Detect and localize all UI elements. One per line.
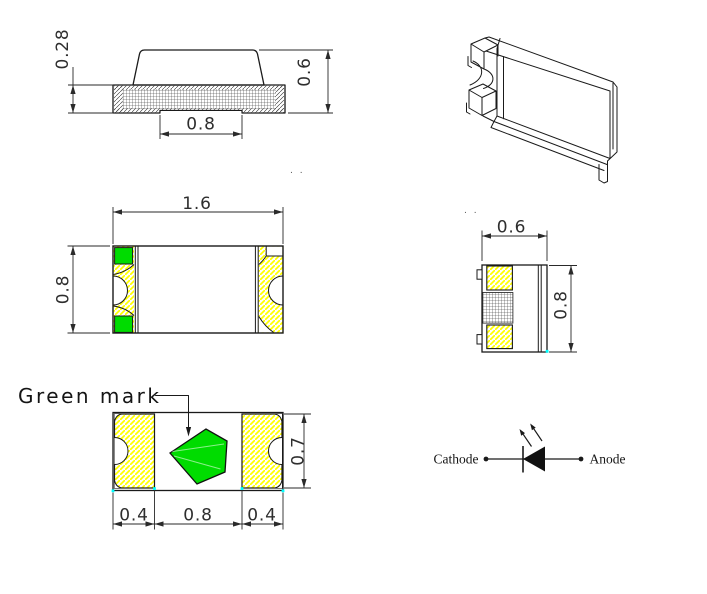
dim-label-0-8-end: 0.8 bbox=[552, 290, 572, 319]
dimension-end-width: 0.6 bbox=[482, 218, 547, 262]
dimension-base-height: 0.28 bbox=[53, 28, 115, 113]
dim-label-0-4-right: 0.4 bbox=[247, 506, 276, 526]
cathode-label: Cathode bbox=[434, 452, 479, 467]
dimension-end-height: 0.8 bbox=[549, 266, 577, 353]
dim-label-0-8-notch: 0.8 bbox=[186, 115, 215, 135]
bottom-view: Green mark 0.4 0.8 0.4 0.7 bbox=[18, 384, 311, 530]
end-leadframe-grid bbox=[483, 293, 513, 324]
dim-label-0-6-end: 0.6 bbox=[497, 218, 526, 238]
end-plating-top bbox=[487, 266, 513, 290]
side-view: 0.28 0.6 0.8 . . bbox=[53, 28, 333, 176]
end-plating-bottom bbox=[487, 325, 513, 349]
dim-label-1-6: 1.6 bbox=[182, 194, 211, 214]
dimension-pad-chain: 0.4 0.8 0.4 bbox=[113, 490, 283, 530]
dim-label-0-28: 0.28 bbox=[53, 28, 73, 69]
end-terminal-tab-bottom bbox=[477, 335, 482, 344]
dimension-width: 0.8 bbox=[54, 246, 111, 333]
green-mark-square-bottom bbox=[115, 316, 133, 332]
cathode-terminal-dot bbox=[484, 457, 489, 462]
bottom-left-pad bbox=[115, 414, 155, 488]
stray-marks-2: . . bbox=[464, 206, 479, 216]
dimension-length: 1.6 bbox=[113, 194, 283, 244]
bottom-right-pad bbox=[242, 414, 282, 488]
top-view: 1.6 0.8 bbox=[54, 194, 284, 333]
drawing-sheet: 0.28 0.6 0.8 . . . . bbox=[0, 0, 707, 594]
iso-left-terminal-castellation bbox=[467, 38, 499, 122]
dim-label-0-8-width: 0.8 bbox=[54, 275, 74, 304]
led-circuit-symbol: Cathode Anode bbox=[434, 424, 626, 473]
snap-marker bbox=[546, 350, 549, 353]
epoxy-body-outline bbox=[133, 50, 264, 85]
green-mark-square-top bbox=[115, 248, 133, 264]
isometric-view: . . bbox=[464, 37, 617, 216]
led-package-drawing: 0.28 0.6 0.8 . . . . bbox=[0, 0, 707, 594]
end-terminal-tab-top bbox=[477, 270, 482, 279]
dim-label-0-7: 0.7 bbox=[289, 436, 309, 465]
top-view-right-terminal bbox=[255, 246, 283, 333]
green-mark-label: Green mark bbox=[18, 384, 161, 408]
end-view: 0.6 0.8 bbox=[477, 218, 577, 353]
stray-marks-1: . . bbox=[290, 166, 305, 176]
anode-terminal-dot bbox=[579, 457, 584, 462]
dimension-pad-height: 0.7 bbox=[284, 414, 311, 488]
iso-box-edges bbox=[485, 37, 617, 171]
dim-label-0-4-left: 0.4 bbox=[119, 506, 148, 526]
diode-triangle bbox=[523, 447, 545, 472]
light-emission-arrows bbox=[520, 424, 543, 447]
dimension-bottom-notch: 0.8 bbox=[160, 115, 242, 140]
dim-label-0-6-side: 0.6 bbox=[295, 57, 315, 86]
dim-label-0-8-gap: 0.8 bbox=[183, 506, 212, 526]
anode-label: Anode bbox=[590, 452, 626, 467]
base-grid-hatch bbox=[123, 89, 277, 109]
leadframe-base bbox=[113, 85, 285, 114]
